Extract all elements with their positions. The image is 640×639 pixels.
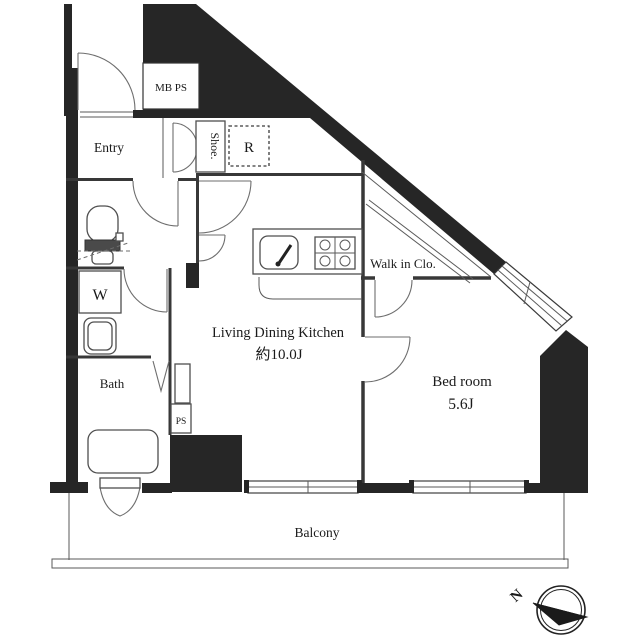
wall-hall-chunk xyxy=(186,263,199,288)
refrigerator-label: R xyxy=(244,140,254,156)
closet-hanger-line-1 xyxy=(366,204,470,283)
kitchen-counter-front-edge xyxy=(259,277,362,299)
toilet-seat-band xyxy=(85,240,120,251)
wall-bottom-left-stub xyxy=(50,482,88,493)
bedroom-window-cap-left xyxy=(409,480,414,493)
compass: N xyxy=(508,586,587,634)
mb-ps-label: MB PS xyxy=(155,82,187,94)
bedroom-window-cap-right xyxy=(524,480,529,493)
walkin-closet-label: Walk in Clo. xyxy=(370,256,436,271)
hall-ldk-small-door-swing xyxy=(199,235,225,261)
wall-left-upper xyxy=(64,68,78,116)
ldk-window-cap-left xyxy=(244,480,249,493)
washbasin-inner xyxy=(88,322,112,350)
entry-label: Entry xyxy=(94,140,124,155)
bedroom-label: Bed room xyxy=(432,374,492,390)
wall-bottom-bath xyxy=(142,483,172,493)
walkin-closet-door-swing xyxy=(375,280,412,317)
ps-label: PS xyxy=(176,417,187,427)
toilet-lever xyxy=(116,233,123,241)
bath-folding-door xyxy=(153,361,169,391)
entry-closet-folding-doors xyxy=(173,123,197,172)
diagonal-window-rail-2 xyxy=(498,270,562,326)
bedroom-size-label: 5.6J xyxy=(448,396,473,413)
bath-label: Bath xyxy=(100,376,125,391)
balcony-bottom-rail xyxy=(52,559,568,568)
partition-walls xyxy=(66,112,491,483)
wall-left-top xyxy=(64,4,72,72)
ldk-label: Living Dining Kitchen xyxy=(212,325,345,341)
washer-label: W xyxy=(92,287,108,304)
ldk-size-label: 約10.0J xyxy=(255,346,302,363)
shoe-label: Shoe. xyxy=(208,133,222,160)
bedroom-door-swing xyxy=(365,337,410,382)
washroom-door-swing xyxy=(124,269,167,312)
wall-bottom-block xyxy=(170,435,242,492)
wall-bottom-mid xyxy=(360,483,413,493)
bathtub xyxy=(88,430,158,473)
toilet-bowl xyxy=(87,206,118,242)
wall-right-column xyxy=(540,330,588,493)
toilet-tank xyxy=(92,251,113,264)
wall-left-main xyxy=(66,112,78,484)
entry-door-swing xyxy=(78,53,135,110)
kitchen-faucet-base xyxy=(276,262,281,267)
bath-balcony-door-arch xyxy=(100,487,140,516)
balcony-label: Balcony xyxy=(295,525,340,540)
toilet-door-swing xyxy=(133,181,178,226)
compass-north-label: N xyxy=(508,586,527,605)
diagonal-window xyxy=(494,262,572,331)
hall-ldk-door-swing xyxy=(199,181,251,233)
diagonal-window-frame xyxy=(494,262,572,331)
ldk-window-cap-right xyxy=(357,480,362,493)
bath-balcony-threshold xyxy=(100,478,140,488)
floorplan-page: Entry MB PS Shoe. R W Bath PS Living Din… xyxy=(0,0,640,639)
duct-box xyxy=(175,364,190,403)
floorplan-drawing: Entry MB PS Shoe. R W Bath PS Living Din… xyxy=(0,0,640,639)
diagonal-window-rail-1 xyxy=(502,266,567,321)
